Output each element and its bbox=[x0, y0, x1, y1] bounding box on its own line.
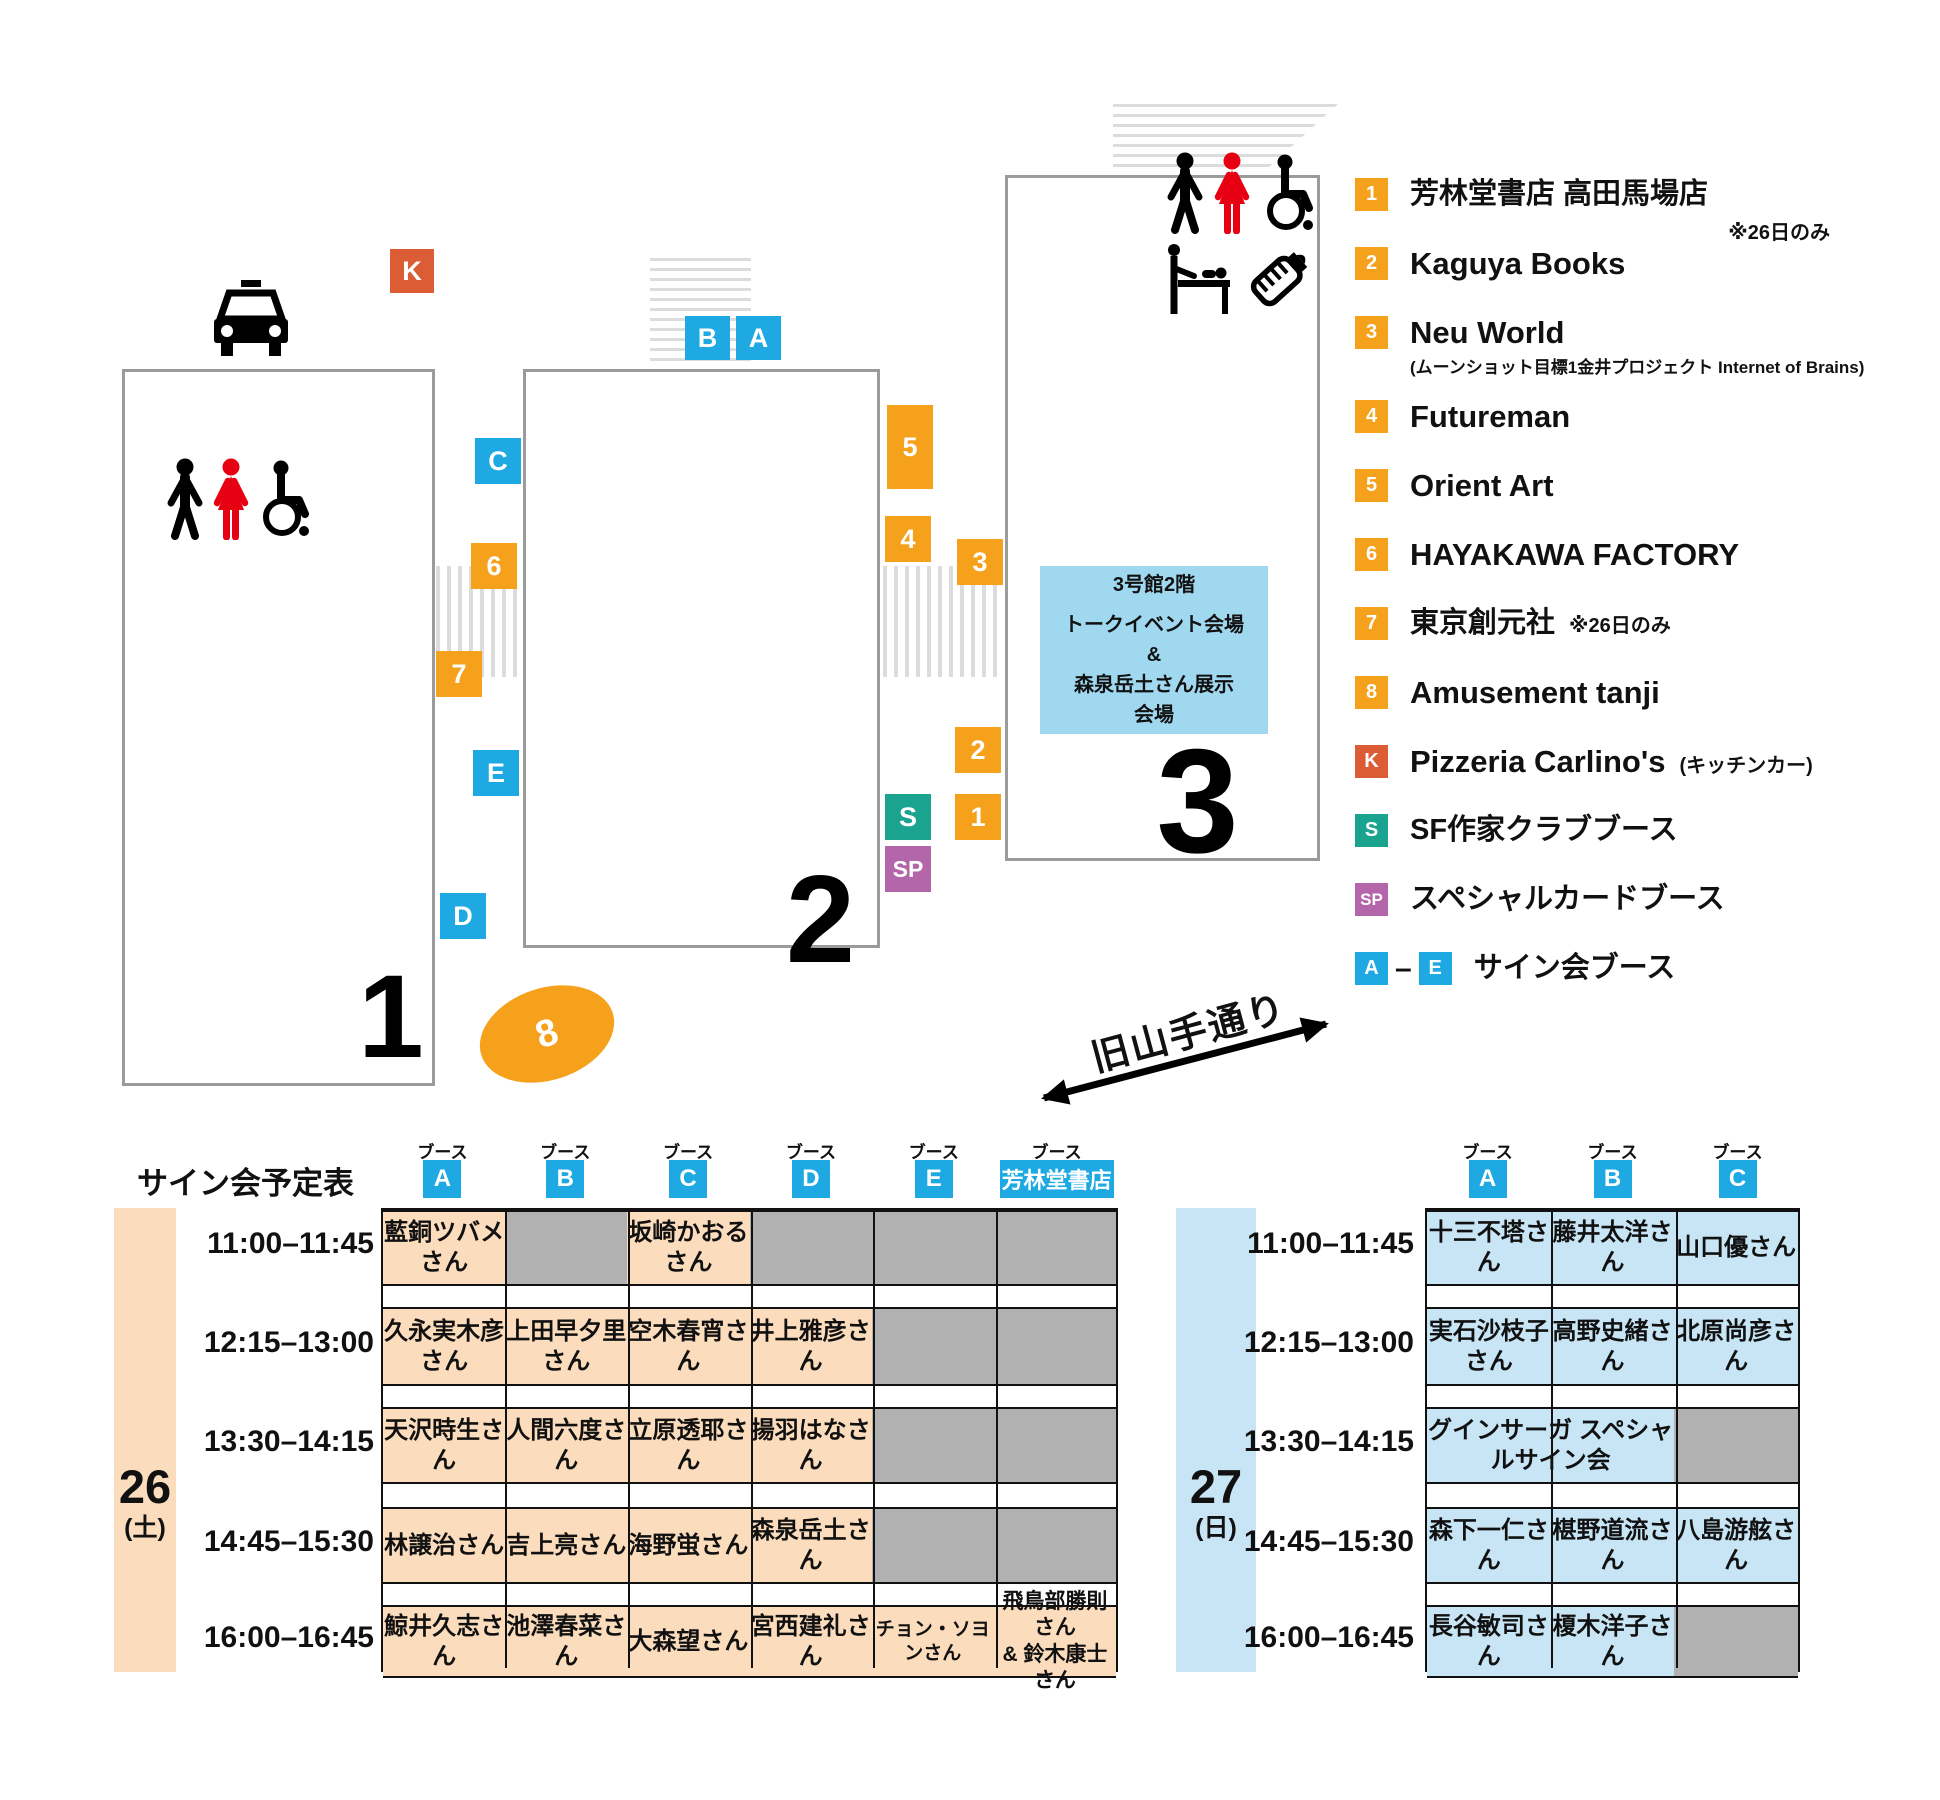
booth-SP-marker: SP bbox=[885, 846, 931, 892]
legend-item-6: 6HAYAKAWA FACTORY bbox=[1355, 538, 1739, 571]
booth-column-header-芳林堂書店: 芳林堂書店 bbox=[1000, 1160, 1114, 1198]
legend-key-A: A bbox=[1355, 952, 1388, 985]
column-divider bbox=[873, 1212, 875, 1668]
legend-label: Pizzeria Carlino's bbox=[1410, 744, 1665, 779]
legend-label: 東京創元社 bbox=[1410, 607, 1555, 639]
talk-event-info-box: 3号館2階トークイベント会場&森泉岳土さん展示会場 bbox=[1040, 566, 1268, 734]
table-row: 実石沙枝子さん高野史緒さん北原尚彦さん bbox=[1427, 1307, 1798, 1386]
legend-item-label: スペシャルカードブース bbox=[1410, 883, 1725, 916]
schedule-cell: 上田早夕里さん bbox=[505, 1309, 627, 1384]
legend-label: HAYAKAWA FACTORY bbox=[1410, 537, 1739, 572]
table-row: 久永実木彦さん上田早夕里さん空木春宵さん井上雅彦さん bbox=[383, 1307, 1116, 1386]
schedule-grid-day26: 藍銅ツバメさん坂崎かおるさん久永実木彦さん上田早夕里さん空木春宵さん井上雅彦さん… bbox=[381, 1208, 1118, 1672]
schedule-cell: チョン・ソヨンさん bbox=[872, 1607, 994, 1676]
restroom-icons-building3 bbox=[1163, 152, 1323, 234]
wheelchair-icon bbox=[1259, 154, 1317, 234]
legend-item-1: 1芳林堂書店 高田馬場店※26日のみ bbox=[1355, 178, 1830, 245]
legend-item-8: 8Amusement tanji bbox=[1355, 676, 1660, 709]
legend-label: 芳林堂書店 高田馬場店 bbox=[1410, 178, 1708, 210]
booth-B-marker: B bbox=[685, 316, 730, 360]
column-divider bbox=[628, 1212, 630, 1668]
legend-item-label: サイン会ブース bbox=[1474, 952, 1676, 985]
event-map-flyer: 1 2 3 bbox=[0, 0, 1940, 1800]
booth-column-header-C: C bbox=[1719, 1160, 1757, 1198]
booth-A-marker: A bbox=[736, 316, 781, 360]
schedule-cell: 飛鳥部勝則さん & 鈴木康士さん bbox=[994, 1607, 1116, 1676]
legend-item-text: 芳林堂書店 高田馬場店※26日のみ bbox=[1410, 178, 1830, 245]
booth-column-header-A: A bbox=[423, 1160, 461, 1198]
legend-item-S: SSF作家クラブブース bbox=[1355, 814, 1678, 847]
booth-C-marker: C bbox=[475, 438, 521, 484]
legend-item-label: 芳林堂書店 高田馬場店 bbox=[1410, 178, 1830, 211]
restroom-women-icon bbox=[1209, 152, 1255, 234]
baby-changing-icon bbox=[1162, 243, 1242, 317]
legend-item-text: スペシャルカードブース bbox=[1410, 883, 1725, 916]
legend-item-label: 東京創元社※26日のみ bbox=[1410, 607, 1671, 643]
booth-column-header-C: C bbox=[669, 1160, 707, 1198]
schedule-cell: 池澤春菜さん bbox=[505, 1607, 627, 1676]
table-row: 長谷敏司さん榎木洋子さん bbox=[1427, 1605, 1798, 1678]
schedule-cell: 井上雅彦さん bbox=[750, 1309, 872, 1384]
time-label: 12:15–13:00 bbox=[140, 1325, 374, 1361]
info-box-line: & bbox=[1147, 640, 1161, 670]
day-number: 26 bbox=[104, 1463, 186, 1510]
booth-4-marker: 4 bbox=[885, 516, 931, 562]
column-divider bbox=[505, 1212, 507, 1668]
legend-key-SP: SP bbox=[1355, 883, 1388, 916]
legend-item-label: Pizzeria Carlino's(キッチンカー) bbox=[1410, 745, 1813, 783]
schedule-cell: 藤井太洋さん bbox=[1551, 1212, 1675, 1284]
legend-label: Futureman bbox=[1410, 399, 1570, 434]
schedule-cell bbox=[872, 1509, 994, 1582]
legend-item-A: A–Eサイン会ブース bbox=[1355, 952, 1675, 985]
legend-key-6: 6 bbox=[1355, 538, 1388, 571]
info-box-line: 会場 bbox=[1134, 700, 1174, 730]
signing-table-day27: 27(日)ブースAブースBブースC十三不塔さん藤井太洋さん山口優さん実石沙枝子さ… bbox=[1140, 1138, 1820, 1678]
schedule-cell: 榎木洋子さん bbox=[1551, 1607, 1675, 1676]
booth-column-header-D: D bbox=[792, 1160, 830, 1198]
table-row: 十三不塔さん藤井太洋さん山口優さん bbox=[1427, 1210, 1798, 1286]
schedule-cell: 空木春宵さん bbox=[627, 1309, 749, 1384]
legend-item-text: Neu World(ムーンショット目標1金井プロジェクト Internet of… bbox=[1410, 316, 1864, 378]
legend-note: ※26日のみ bbox=[1569, 615, 1671, 637]
booth-K-marker: K bbox=[390, 249, 434, 293]
legend-item-SP: SPスペシャルカードブース bbox=[1355, 883, 1725, 916]
legend-key-5: 5 bbox=[1355, 469, 1388, 502]
time-label: 11:00–11:45 bbox=[1180, 1226, 1414, 1262]
schedule-cell bbox=[1674, 1409, 1798, 1482]
booth-E-marker: E bbox=[473, 750, 519, 796]
schedule-cell: 椹野道流さん bbox=[1551, 1509, 1675, 1582]
column-divider bbox=[1676, 1212, 1678, 1668]
legend-item-label: Orient Art bbox=[1410, 469, 1554, 502]
booth-2-marker: 2 bbox=[955, 727, 1001, 773]
building-2-number: 2 bbox=[758, 858, 883, 982]
column-divider bbox=[1551, 1212, 1553, 1668]
schedule-cell: 立原透耶さん bbox=[627, 1409, 749, 1482]
table-row: 天沢時生さん人間六度さん立原透耶さん揚羽はなさん bbox=[383, 1407, 1116, 1484]
day-number: 27 bbox=[1166, 1463, 1266, 1510]
table-row: グインサーガ スペシャルサイン会 bbox=[1427, 1407, 1798, 1484]
schedule-cell bbox=[1674, 1607, 1798, 1676]
legend-item-label: HAYAKAWA FACTORY bbox=[1410, 538, 1739, 571]
schedule-cell: 山口優さん bbox=[1674, 1212, 1798, 1284]
signing-table-day26: 26(土)ブースAブースBブースCブースDブースEブース芳林堂書店藍銅ツバメさん… bbox=[100, 1138, 1118, 1678]
booth-column-header-B: B bbox=[546, 1160, 584, 1198]
info-box-line: 森泉岳土さん展示 bbox=[1074, 670, 1234, 700]
schedule-cell bbox=[872, 1309, 994, 1384]
legend-label: Kaguya Books bbox=[1410, 246, 1625, 281]
booth-6-marker: 6 bbox=[471, 543, 517, 589]
schedule-cell: 久永実木彦さん bbox=[383, 1309, 505, 1384]
info-box-line: 3号館2階 bbox=[1113, 570, 1195, 600]
legend-key-S: S bbox=[1355, 814, 1388, 847]
schedule-cell bbox=[994, 1212, 1116, 1284]
booth-D-marker: D bbox=[440, 893, 486, 939]
restroom-women-icon bbox=[208, 458, 254, 540]
schedule-cell: 海野蛍さん bbox=[627, 1509, 749, 1582]
legend-label: Amusement tanji bbox=[1410, 675, 1660, 710]
legend-key-E: E bbox=[1419, 952, 1452, 985]
time-label: 13:30–14:15 bbox=[140, 1424, 374, 1460]
table-row: 藍銅ツバメさん坂崎かおるさん bbox=[383, 1210, 1116, 1286]
building-1-number: 1 bbox=[348, 958, 428, 1076]
legend-item-text: Orient Art bbox=[1410, 469, 1554, 502]
legend-item-K: KPizzeria Carlino's(キッチンカー) bbox=[1355, 745, 1813, 783]
schedule-cell: 藍銅ツバメさん bbox=[383, 1212, 505, 1284]
schedule-cell: 十三不塔さん bbox=[1427, 1212, 1551, 1284]
schedule-cell bbox=[994, 1309, 1116, 1384]
time-label: 14:45–15:30 bbox=[1180, 1524, 1414, 1560]
schedule-cell: 八島游舷さん bbox=[1674, 1509, 1798, 1582]
legend-item-text: Futureman bbox=[1410, 400, 1570, 433]
schedule-cell: 森泉岳土さん bbox=[750, 1509, 872, 1582]
restroom-men-icon bbox=[1163, 152, 1207, 234]
booth-7-marker: 7 bbox=[436, 651, 482, 697]
schedule-cell: 吉上亮さん bbox=[505, 1509, 627, 1582]
legend-item-label: Neu World bbox=[1410, 316, 1864, 349]
legend-item-label: Kaguya Books bbox=[1410, 247, 1625, 280]
table-row: 森下一仁さん椹野道流さん八島游舷さん bbox=[1427, 1507, 1798, 1584]
time-label: 12:15–13:00 bbox=[1180, 1325, 1414, 1361]
legend-item-text: HAYAKAWA FACTORY bbox=[1410, 538, 1739, 571]
wheelchair-icon bbox=[255, 460, 313, 540]
schedule-cell: 大森望さん bbox=[627, 1607, 749, 1676]
booth-S-marker: S bbox=[885, 794, 931, 840]
legend-label: Neu World bbox=[1410, 315, 1564, 350]
legend-item-label: SF作家クラブブース bbox=[1410, 814, 1678, 847]
legend-item-3: 3Neu World(ムーンショット目標1金井プロジェクト Internet o… bbox=[1355, 316, 1864, 378]
legend-item-label: Futureman bbox=[1410, 400, 1570, 433]
legend-item-text: サイン会ブース bbox=[1474, 952, 1676, 985]
legend-item-7: 7東京創元社※26日のみ bbox=[1355, 607, 1671, 643]
schedule-cell: 実石沙枝子さん bbox=[1427, 1309, 1551, 1384]
legend-item-4: 4Futureman bbox=[1355, 400, 1570, 433]
info-box-line: トークイベント会場 bbox=[1064, 610, 1244, 640]
legend-label: SF作家クラブブース bbox=[1410, 814, 1678, 846]
column-divider bbox=[996, 1212, 998, 1668]
nursing-bottle-icon bbox=[1238, 238, 1320, 320]
legend-item-text: Kaguya Books bbox=[1410, 247, 1625, 280]
legend-item-text: Pizzeria Carlino's(キッチンカー) bbox=[1410, 745, 1813, 783]
schedule-cell: 林譲治さん bbox=[383, 1509, 505, 1582]
booth-column-header-E: E bbox=[915, 1160, 953, 1198]
schedule-cell: 高野史緒さん bbox=[1551, 1309, 1675, 1384]
legend-key-range-dash: – bbox=[1395, 952, 1412, 985]
schedule-cell: 長谷敏司さん bbox=[1427, 1607, 1551, 1676]
legend-key-2: 2 bbox=[1355, 247, 1388, 280]
building-3-number: 3 bbox=[1135, 728, 1260, 876]
schedule-cell: 森下一仁さん bbox=[1427, 1509, 1551, 1582]
legend-item-2: 2Kaguya Books bbox=[1355, 247, 1625, 280]
booth-column-header-B: B bbox=[1594, 1160, 1632, 1198]
legend-item-5: 5Orient Art bbox=[1355, 469, 1554, 502]
restroom-icons-building1 bbox=[163, 458, 313, 540]
schedule-cell bbox=[994, 1409, 1116, 1482]
schedule-cell bbox=[505, 1212, 627, 1284]
table-row: 林譲治さん吉上亮さん海野蛍さん森泉岳土さん bbox=[383, 1507, 1116, 1584]
legend-label: サイン会ブース bbox=[1474, 952, 1676, 984]
legend-item-label: Amusement tanji bbox=[1410, 676, 1660, 709]
legend-key-7: 7 bbox=[1355, 607, 1388, 640]
time-label: 13:30–14:15 bbox=[1180, 1424, 1414, 1460]
legend-key-8: 8 bbox=[1355, 676, 1388, 709]
restroom-men-icon bbox=[163, 458, 207, 540]
schedule-cell: 坂崎かおるさん bbox=[627, 1212, 749, 1284]
schedule-cell: 人間六度さん bbox=[505, 1409, 627, 1482]
booth-8-marker: 8 bbox=[467, 969, 627, 1099]
schedule-cell bbox=[872, 1212, 994, 1284]
legend-item-text: 東京創元社※26日のみ bbox=[1410, 607, 1671, 643]
legend-item-text: SF作家クラブブース bbox=[1410, 814, 1678, 847]
time-label: 16:00–16:45 bbox=[1180, 1620, 1414, 1656]
booth-1-marker: 1 bbox=[955, 794, 1001, 840]
schedule-cell bbox=[750, 1212, 872, 1284]
schedule-cell: 揚羽はなさん bbox=[750, 1409, 872, 1482]
legend-key-K: K bbox=[1355, 745, 1388, 778]
schedule-cell: 天沢時生さん bbox=[383, 1409, 505, 1482]
legend-key-3: 3 bbox=[1355, 316, 1388, 349]
legend-note-below: ※26日のみ bbox=[1410, 216, 1830, 245]
legend-item-text: Amusement tanji bbox=[1410, 676, 1660, 709]
time-label: 11:00–11:45 bbox=[140, 1226, 374, 1262]
schedule-cell bbox=[872, 1409, 994, 1482]
table-row: 鯨井久志さん池澤春菜さん大森望さん宮西建礼さんチョン・ソヨンさん飛鳥部勝則さん … bbox=[383, 1605, 1116, 1678]
legend-label: スペシャルカードブース bbox=[1410, 883, 1725, 915]
legend-subtext: (ムーンショット目標1金井プロジェクト Internet of Brains) bbox=[1410, 353, 1864, 378]
schedule-grid-day27: 十三不塔さん藤井太洋さん山口優さん実石沙枝子さん高野史緒さん北原尚彦さんグインサ… bbox=[1425, 1208, 1800, 1672]
time-label: 16:00–16:45 bbox=[140, 1620, 374, 1656]
booth-column-header-A: A bbox=[1469, 1160, 1507, 1198]
schedule-cell: 宮西建礼さん bbox=[750, 1607, 872, 1676]
taxi-icon bbox=[212, 280, 290, 356]
booth-3-marker: 3 bbox=[957, 539, 1003, 585]
legend-key-1: 1 bbox=[1355, 178, 1388, 211]
time-label: 14:45–15:30 bbox=[140, 1524, 374, 1560]
legend-label: Orient Art bbox=[1410, 468, 1554, 503]
schedule-cell bbox=[994, 1509, 1116, 1582]
schedule-cell: 北原尚彦さん bbox=[1674, 1309, 1798, 1384]
legend-key-4: 4 bbox=[1355, 400, 1388, 433]
schedule-cell: 鯨井久志さん bbox=[383, 1607, 505, 1676]
column-divider bbox=[751, 1212, 753, 1668]
legend-note: (キッチンカー) bbox=[1679, 755, 1812, 777]
booth-5-marker: 5 bbox=[887, 405, 933, 489]
